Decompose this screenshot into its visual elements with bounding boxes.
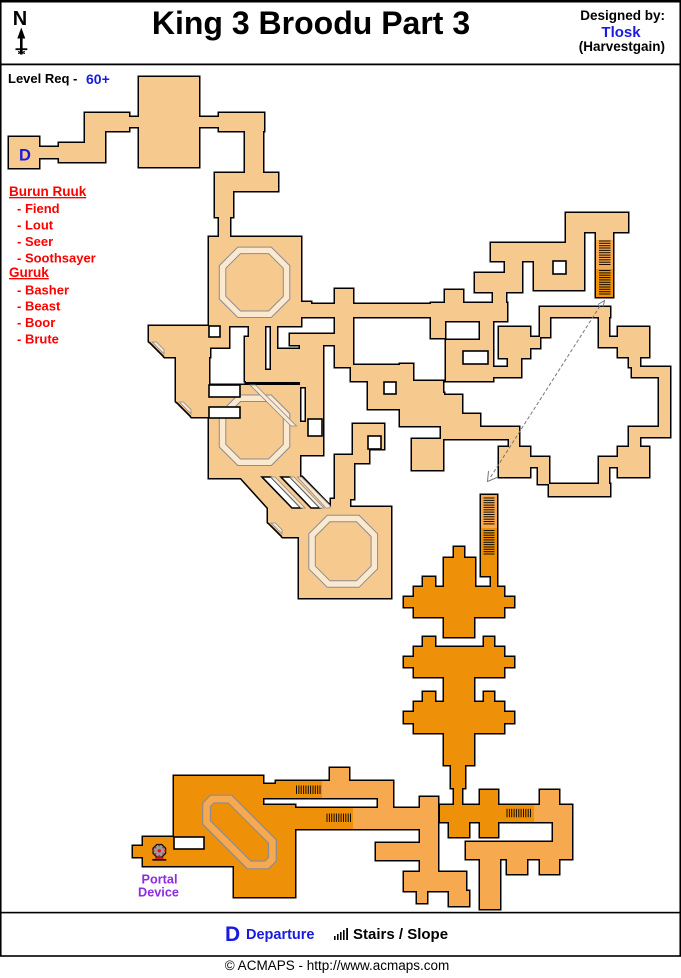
svg-text:- Brute: - Brute	[17, 332, 59, 347]
svg-text:- Lout: - Lout	[17, 218, 54, 233]
svg-text:© ACMAPS - http://www.acmaps.c: © ACMAPS - http://www.acmaps.com	[225, 958, 450, 973]
svg-text:N: N	[13, 8, 27, 30]
svg-text:Level Req -: Level Req -	[8, 71, 77, 86]
svg-text:(Harvestgain): (Harvestgain)	[579, 39, 665, 54]
svg-text:King 3 Broodu Part 3: King 3 Broodu Part 3	[152, 5, 470, 41]
svg-text:D: D	[19, 147, 31, 165]
svg-text:Burun Ruuk: Burun Ruuk	[9, 184, 87, 199]
svg-text:D: D	[225, 923, 240, 946]
svg-text:Device: Device	[138, 885, 179, 899]
svg-text:- Fiend: - Fiend	[17, 201, 60, 216]
svg-text:Guruk: Guruk	[9, 265, 49, 280]
svg-text:- Seer: - Seer	[17, 234, 53, 249]
svg-text:Designed by:: Designed by:	[580, 8, 665, 23]
svg-text:Departure: Departure	[246, 927, 315, 943]
svg-text:- Basher: - Basher	[17, 282, 69, 297]
svg-text:- Soothsayer: - Soothsayer	[17, 250, 96, 265]
svg-text:Stairs / Slope: Stairs / Slope	[353, 926, 448, 943]
svg-text:60+: 60+	[86, 71, 110, 87]
svg-text:- Boor: - Boor	[17, 315, 55, 330]
svg-text:- Beast: - Beast	[17, 299, 61, 314]
